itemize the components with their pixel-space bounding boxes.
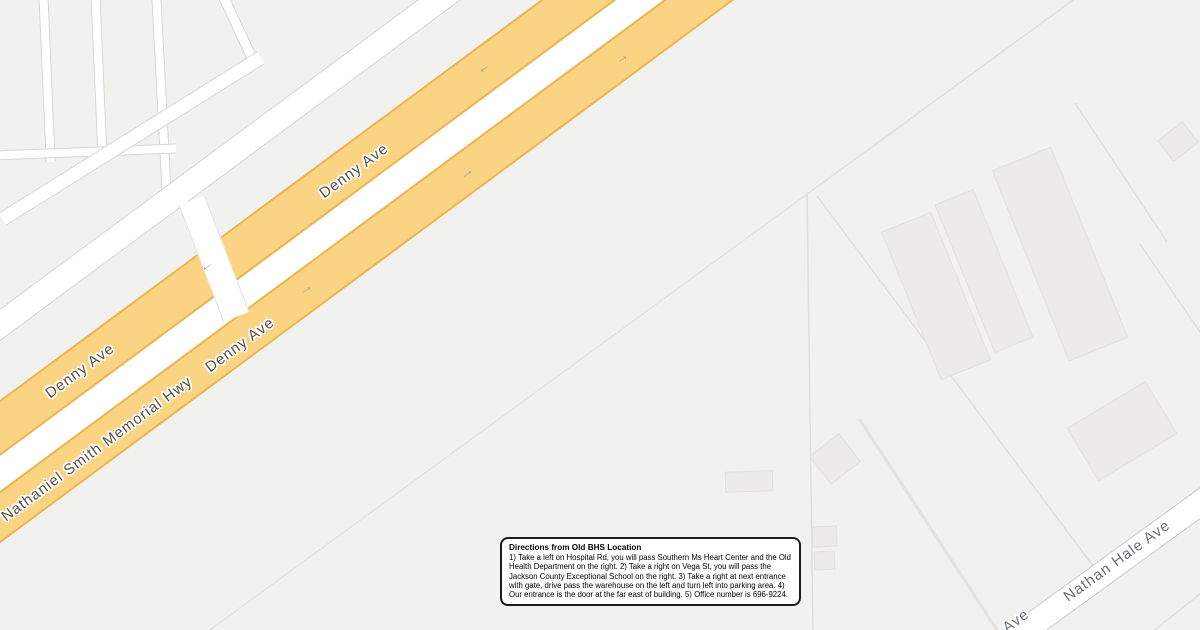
- parcel-line: [1075, 103, 1167, 242]
- parcel-line: [860, 420, 997, 630]
- building: [811, 525, 837, 547]
- map-canvas[interactable]: → → → → → Denny Ave Denny Ave Denny Ave …: [0, 0, 1200, 630]
- parcel-line: [1140, 244, 1200, 332]
- parcel-line: [1152, 594, 1200, 630]
- directions-title: Directions from Old BHS Location: [509, 543, 792, 553]
- directions-box: Directions from Old BHS Location 1) Take…: [500, 537, 801, 606]
- parcel-line: [807, 192, 813, 630]
- building: [814, 550, 836, 570]
- parcel-line: [850, 120, 910, 163]
- building: [725, 470, 774, 493]
- directions-body: 1) Take a left on Hospital Rd, you will …: [509, 553, 792, 599]
